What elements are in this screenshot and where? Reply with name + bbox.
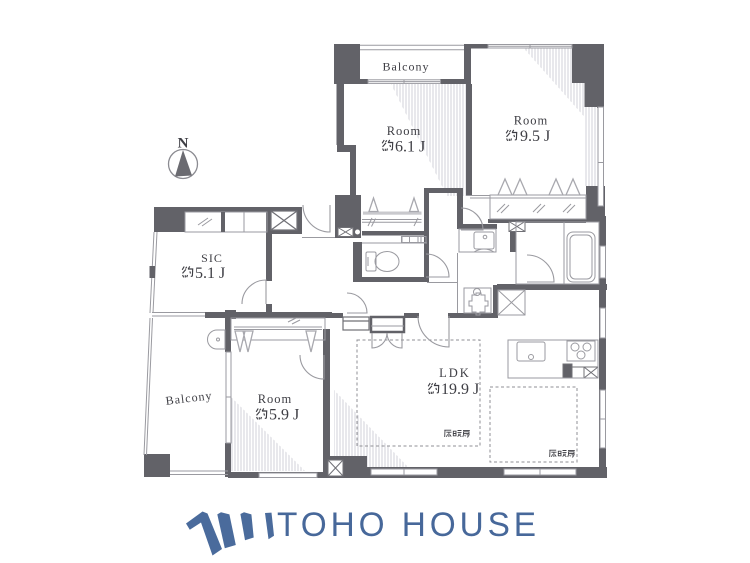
svg-text:Balcony: Balcony [383, 60, 430, 74]
svg-text:Room: Room [387, 124, 422, 138]
svg-text:LDK: LDK [439, 366, 471, 380]
svg-text:Room: Room [514, 114, 549, 128]
svg-text:Room: Room [258, 392, 293, 406]
svg-text:9.5 J: 9.5 J [520, 128, 550, 145]
svg-text:19.9 J: 19.9 J [441, 381, 479, 398]
svg-text:TOHO HOUSE: TOHO HOUSE [277, 506, 540, 544]
svg-text:5.1 J: 5.1 J [195, 265, 225, 282]
svg-text:5.9 J: 5.9 J [269, 407, 299, 424]
svg-text:N: N [178, 136, 189, 152]
svg-text:SIC: SIC [201, 251, 223, 265]
svg-text:6.1 J: 6.1 J [395, 139, 425, 156]
